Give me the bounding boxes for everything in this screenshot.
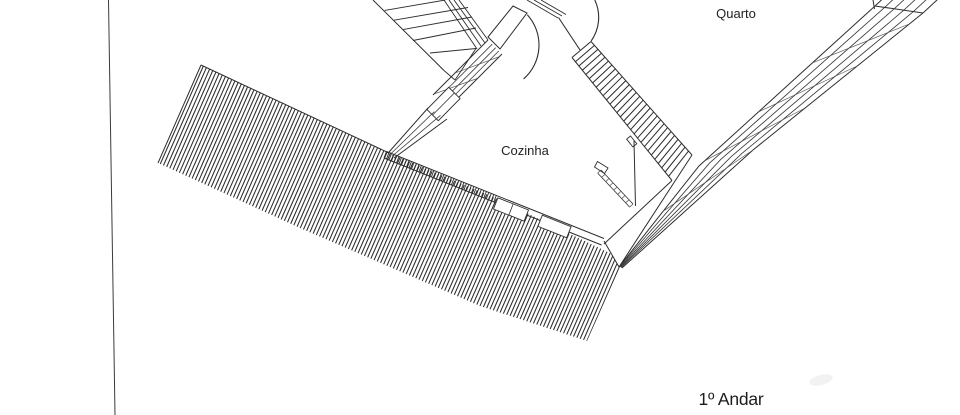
svg-text:1º Andar: 1º Andar <box>698 389 763 409</box>
svg-text:Cozinha: Cozinha <box>501 143 549 158</box>
svg-text:Quarto: Quarto <box>716 6 756 21</box>
